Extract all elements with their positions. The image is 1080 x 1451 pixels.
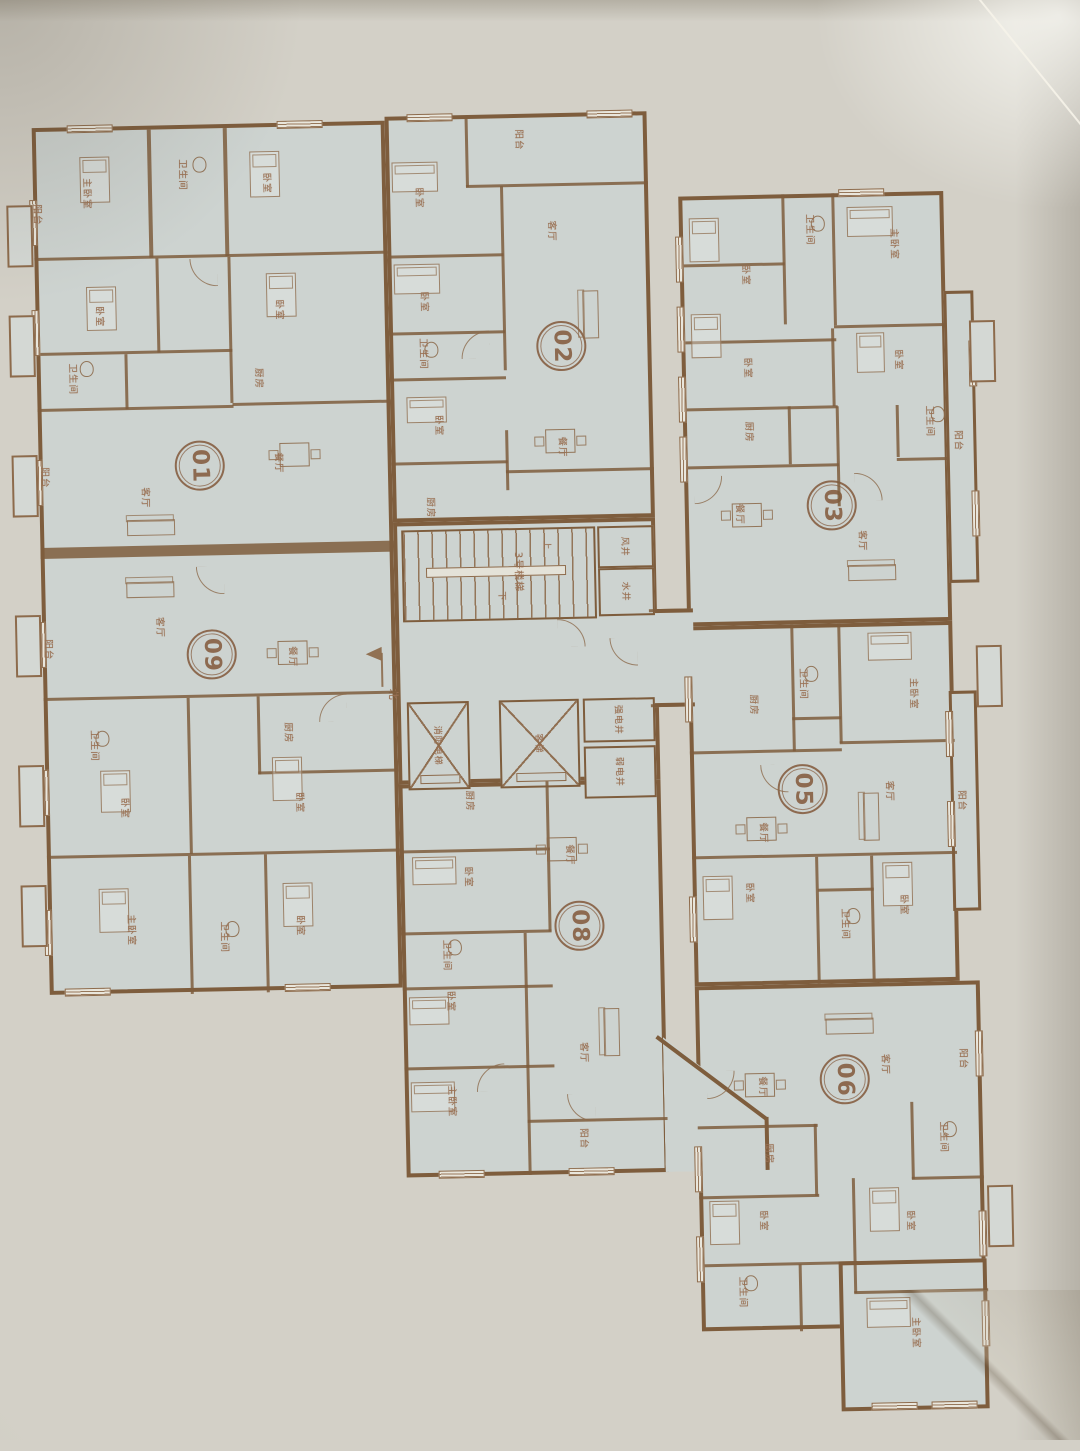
strong-shaft-label: 强电井 [612,705,626,735]
window-marker [277,120,323,129]
room-label: 卧室 [740,264,754,285]
room-label: 卧室 [93,306,107,327]
bed-furniture [867,632,912,661]
room-label: 阳台 [952,430,966,451]
bed-furniture [409,997,450,1026]
room-label: 卧室 [294,915,308,936]
bed-furniture [846,206,893,237]
unit-09-number: 09 [200,637,224,671]
room-label: 餐厅 [556,436,570,457]
room-label: 卫生间 [737,1277,752,1309]
room-label: 厨房 [763,1143,777,1164]
room-label: 餐厅 [564,844,578,865]
window-marker [285,983,331,992]
bed-furniture [702,876,733,921]
window-marker [569,1167,615,1176]
room-label: 卧室 [418,291,432,312]
window-marker [65,988,111,997]
unit-02-number: 02 [549,329,573,363]
unit-01-number: 01 [188,448,212,482]
window-marker [439,1170,485,1179]
room-label: 卧室 [413,187,427,208]
room-label: 卫生间 [804,214,819,246]
toilet-fixture [80,361,94,377]
bay-window [976,645,1003,708]
north-arrow-icon [366,647,382,661]
sofa-furniture [825,1018,873,1035]
window-marker [947,801,956,847]
bed-furniture [691,314,722,359]
window-marker [945,711,954,757]
window-marker [679,436,688,482]
room-label: 客厅 [154,617,168,638]
room-label: 主卧室 [81,178,96,210]
bay-window [18,765,45,828]
room-label: 阳台 [513,129,527,150]
room-label: 卫生间 [441,940,456,972]
toilet-fixture [192,156,206,172]
window-marker [696,1236,705,1282]
window-marker [684,676,693,722]
room-label: 阳台 [39,467,53,488]
sofa-furniture [848,564,896,581]
room-label: 卧室 [261,173,275,194]
room-label: 阳台 [956,790,970,811]
floor-plan-photo: 北 3号楼梯 上 下 消防电梯 客梯 强电井 弱电井 风井 水井 01 02 0… [0,0,1080,1440]
room-label: 客厅 [856,530,870,551]
room-label: 主卧室 [125,914,140,946]
window-marker [979,1210,988,1256]
room-label: 厨房 [464,790,478,811]
bay-window [969,320,996,383]
room-label: 餐厅 [287,646,301,667]
window-marker [67,124,113,133]
room-label: 阳台 [578,1128,592,1149]
floor-plan-drawing: 北 3号楼梯 上 下 消防电梯 客梯 强电井 弱电井 风井 水井 01 02 0… [0,0,1080,1451]
bottomright-fold-shadow [890,1290,1080,1440]
room-label: 主卧室 [888,228,903,260]
window-marker [975,1030,984,1076]
room-label: 厨房 [748,694,762,715]
sofa-furniture [127,519,175,536]
bay-window [21,885,48,948]
room-label: 卧室 [892,349,906,370]
room-label: 客厅 [578,1042,592,1063]
window-marker [678,376,687,422]
room-label: 阳台 [42,639,56,660]
room-label: 客厅 [879,1054,893,1075]
bay-window [9,315,36,378]
room-label: 卫生间 [176,159,191,191]
room-label: 卧室 [119,798,133,819]
room-label: 厨房 [424,497,438,518]
passenger-elevator-label: 客梯 [533,733,546,753]
room-label: 餐厅 [273,452,287,473]
room-label: 卫生间 [88,730,103,762]
bed-furniture [869,1187,900,1232]
unit-06-number: 06 [833,1062,857,1096]
room-label: 卧室 [744,883,758,904]
sofa-furniture [603,1008,620,1056]
room-label: 卧室 [433,415,447,436]
bed-furniture [394,264,441,295]
unit-05-number: 05 [791,772,815,806]
room-label: 卧室 [905,1210,919,1231]
sofa-furniture [582,290,599,338]
window-marker [677,306,686,352]
sofa-furniture [863,792,880,840]
weak-shaft-label: 弱电井 [613,757,627,787]
unit-05-block [687,621,959,986]
room-label: 主卧室 [446,1086,461,1118]
bed-furniture [856,332,885,373]
room-label: 卫生间 [218,921,233,953]
room-label: 餐厅 [757,1076,771,1097]
bed-furniture [689,218,720,263]
window-marker [838,188,884,197]
room-label: 卧室 [445,991,459,1012]
room-label: 厨房 [743,421,757,442]
room-label: 餐厅 [757,822,771,843]
room-label: 客厅 [884,781,898,802]
window-marker [971,490,980,536]
room-label: 卫生间 [67,363,82,395]
room-label: 卫生间 [417,338,432,370]
room-label: 餐厅 [734,504,748,525]
room-label: 卧室 [273,299,287,320]
room-label: 卧室 [462,866,476,887]
stair-down-label: 下 [496,591,509,601]
unit-08-number: 08 [568,909,592,943]
room-label: 卧室 [898,894,912,915]
window-marker [675,236,684,282]
bed-furniture [709,1201,740,1246]
room-label: 客厅 [546,221,560,242]
window-marker [586,110,632,119]
water-shaft-label: 水井 [620,582,633,602]
window-marker [406,113,452,122]
room-label: 卫生间 [924,405,939,437]
sofa-furniture [126,581,174,598]
bay-window [987,1185,1014,1248]
bed-furniture [412,856,457,885]
room-label: 卫生间 [797,668,812,700]
room-label: 厨房 [253,368,267,389]
bay-window [15,615,42,678]
window-marker [689,896,698,942]
room-label: 卫生间 [839,908,854,940]
room-label: 主卧室 [907,678,922,710]
air-shaft-label: 风井 [619,537,632,557]
bay-window [12,455,39,518]
stair-up-label: 上 [541,540,554,550]
room-label: 阳台 [957,1048,971,1069]
room-label: 厨房 [282,722,296,743]
window-marker [694,1146,703,1192]
bay-window [6,205,33,268]
room-label: 卧室 [742,357,756,378]
fire-elevator-label: 消防电梯 [432,726,446,766]
room-label: 卧室 [294,792,308,813]
room-label: 卧室 [757,1210,771,1231]
room-label: 卫生间 [938,1121,953,1153]
room-label: 客厅 [139,487,153,508]
room-label: 阳台 [31,204,45,225]
stair-label: 3号楼梯 [512,552,528,593]
